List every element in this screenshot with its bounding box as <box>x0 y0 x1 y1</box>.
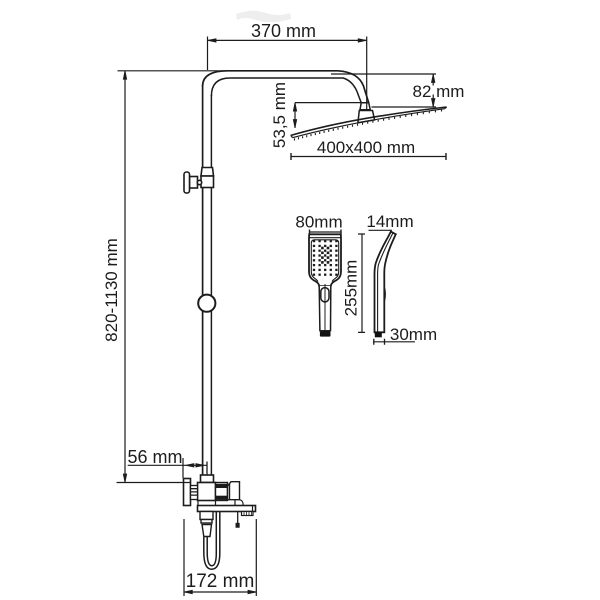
svg-text:400x400 mm: 400x400 mm <box>317 138 415 157</box>
svg-text:80mm: 80mm <box>295 213 342 232</box>
svg-text:53,5 mm: 53,5 mm <box>270 82 289 148</box>
svg-text:370 mm: 370 mm <box>251 21 316 41</box>
svg-text:14mm: 14mm <box>366 212 413 231</box>
svg-text:30mm: 30mm <box>390 325 437 344</box>
svg-text:172 mm: 172 mm <box>186 571 255 592</box>
svg-text:820-1130 mm: 820-1130 mm <box>102 238 121 342</box>
svg-text:56 mm: 56 mm <box>127 447 182 467</box>
svg-text:255mm: 255mm <box>342 260 361 317</box>
svg-text:82 mm: 82 mm <box>413 82 465 101</box>
